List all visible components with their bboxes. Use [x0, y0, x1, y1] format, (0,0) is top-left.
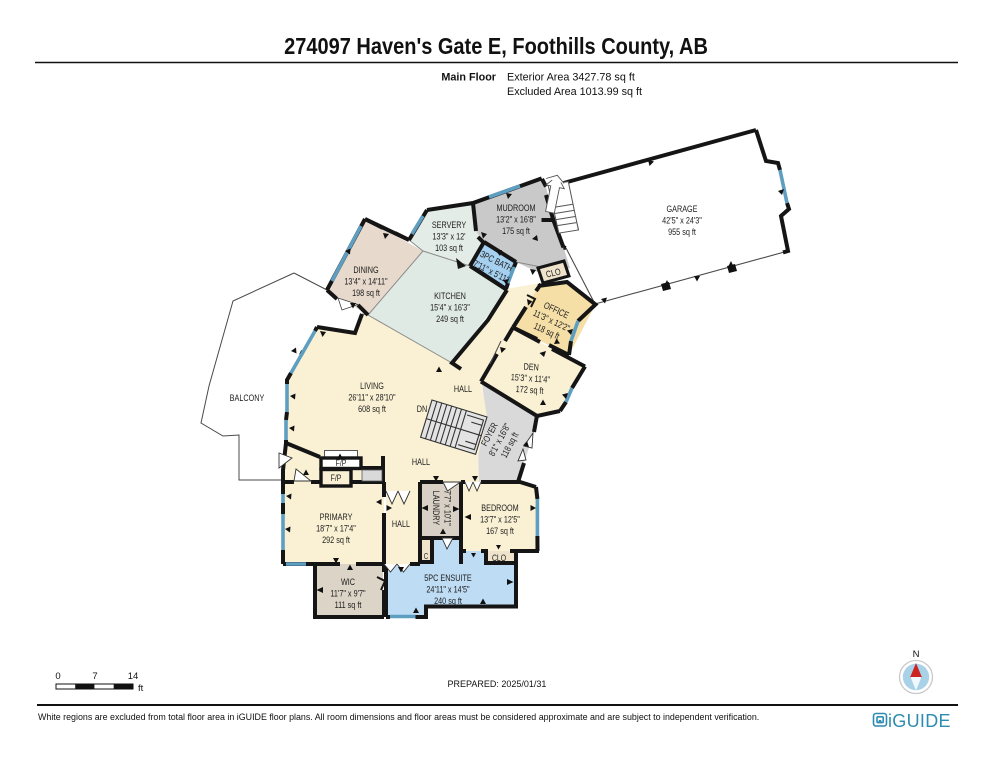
svg-text:F/P: F/P — [331, 473, 342, 483]
svg-text:0: 0 — [55, 671, 60, 682]
svg-text:LAUNDRY7'7" x 10'1": LAUNDRY7'7" x 10'1" — [431, 490, 454, 526]
svg-text:SERVERY13'3" x 12'103 sq ft: SERVERY13'3" x 12'103 sq ft — [432, 219, 467, 253]
svg-text:274097 Haven's Gate E, Foothil: 274097 Haven's Gate E, Foothills County,… — [284, 33, 708, 60]
svg-text:Excluded Area 1013.99 sq ft: Excluded Area 1013.99 sq ft — [507, 86, 642, 98]
svg-text:7: 7 — [92, 671, 97, 682]
svg-text:N: N — [913, 649, 920, 660]
svg-text:Main Floor: Main Floor — [441, 72, 496, 84]
svg-text:ft: ft — [138, 683, 144, 694]
svg-text:DN: DN — [417, 403, 427, 414]
svg-text:14: 14 — [128, 671, 139, 682]
svg-text:HALL: HALL — [412, 456, 430, 467]
svg-text:CLO: CLO — [492, 553, 506, 563]
svg-text:iGUIDE: iGUIDE — [888, 711, 951, 731]
svg-text:PREPARED: 2025/01/31: PREPARED: 2025/01/31 — [448, 679, 547, 689]
svg-text:HALL: HALL — [392, 518, 410, 529]
svg-text:BALCONY: BALCONY — [230, 392, 265, 403]
svg-text:HALL: HALL — [454, 383, 472, 394]
svg-text:F/P: F/P — [336, 458, 347, 468]
svg-text:C: C — [424, 552, 428, 561]
svg-text:Exterior Area 3427.78 sq ft: Exterior Area 3427.78 sq ft — [507, 72, 635, 84]
svg-text:White regions are excluded fro: White regions are excluded from total fl… — [38, 712, 759, 722]
